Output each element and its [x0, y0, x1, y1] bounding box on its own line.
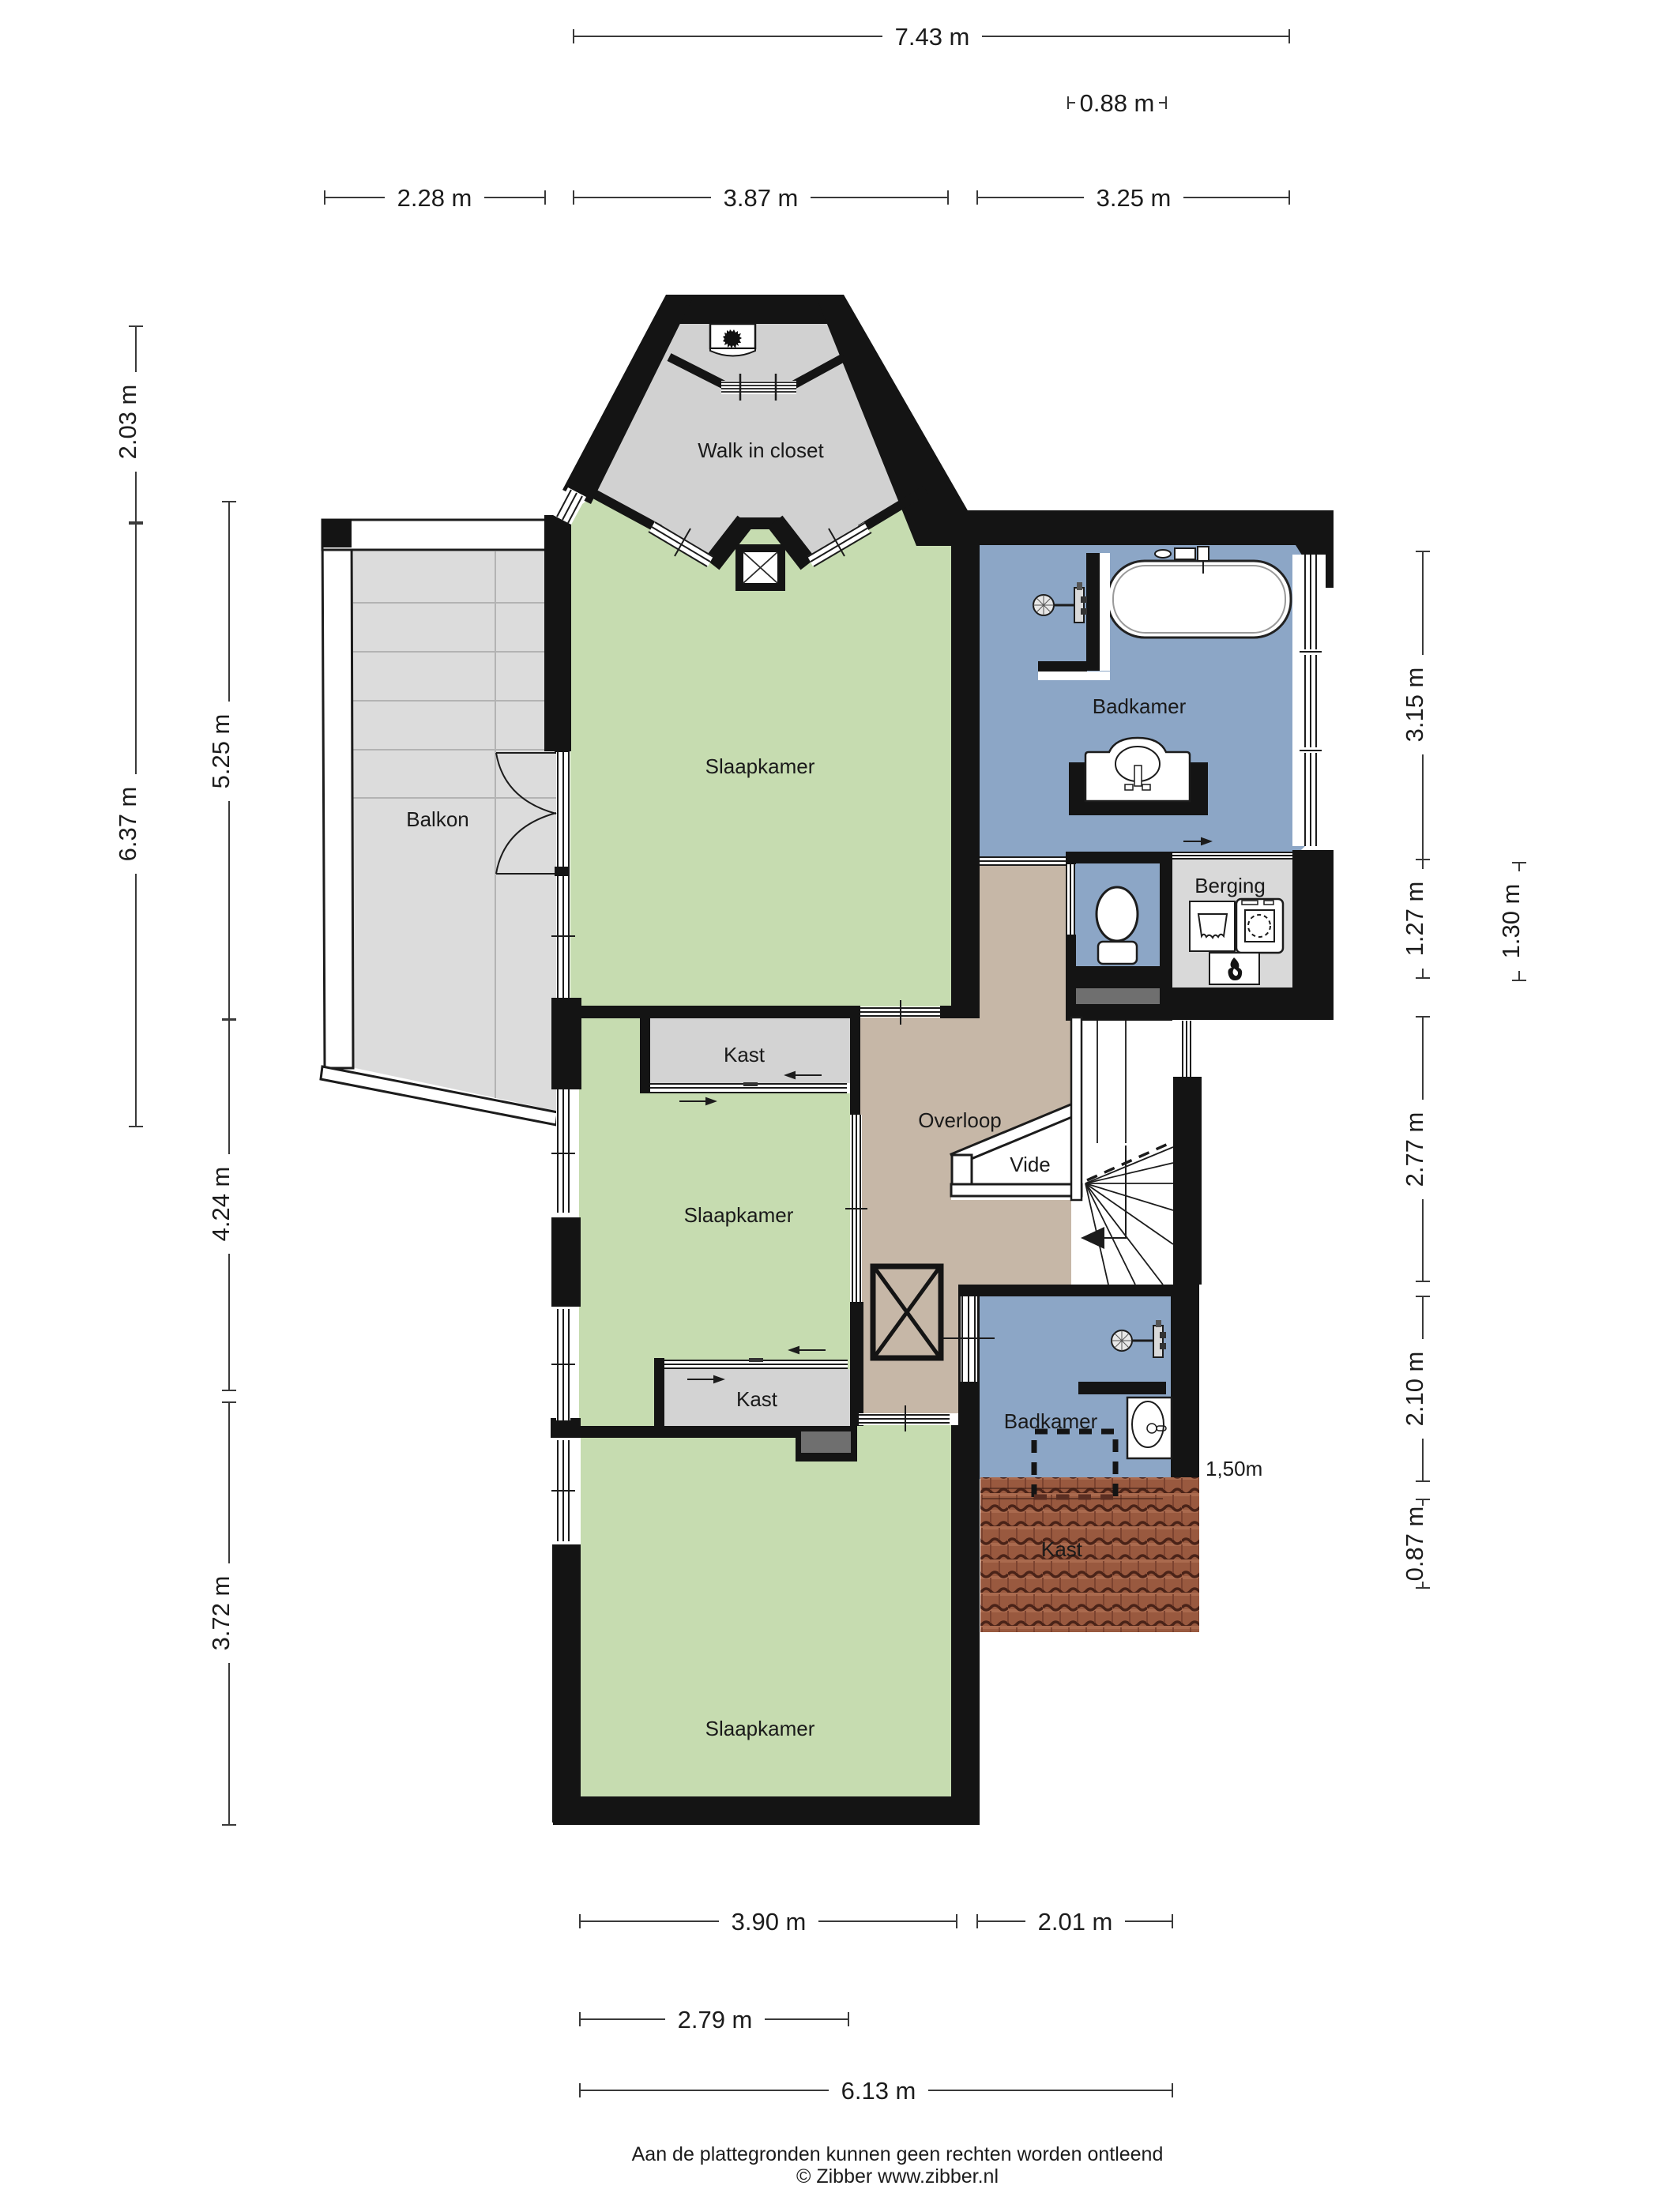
svg-text:Kast: Kast: [736, 1387, 778, 1411]
svg-text:1.27 m: 1.27 m: [1401, 882, 1428, 957]
svg-text:2.10 m: 2.10 m: [1401, 1352, 1428, 1427]
svg-text:4.24 m: 4.24 m: [207, 1167, 235, 1242]
svg-text:Slaapkamer: Slaapkamer: [705, 754, 815, 778]
svg-text:0.88 m: 0.88 m: [1080, 89, 1155, 117]
svg-text:1,50m: 1,50m: [1206, 1457, 1262, 1480]
svg-text:Badkamer: Badkamer: [1093, 694, 1187, 718]
svg-text:6.37 m: 6.37 m: [114, 787, 141, 862]
svg-text:3.25 m: 3.25 m: [1097, 184, 1172, 212]
svg-text:5.25 m: 5.25 m: [207, 714, 235, 789]
svg-text:2.77 m: 2.77 m: [1401, 1112, 1428, 1187]
svg-text:Berging: Berging: [1194, 874, 1266, 897]
svg-text:© Zibber www.zibber.nl: © Zibber www.zibber.nl: [796, 2165, 999, 2188]
svg-text:6.13 m: 6.13 m: [841, 2077, 916, 2105]
svg-text:Vide: Vide: [1010, 1153, 1051, 1176]
svg-text:Slaapkamer: Slaapkamer: [705, 1717, 815, 1740]
svg-text:Slaapkamer: Slaapkamer: [684, 1203, 794, 1227]
svg-text:1.30 m: 1.30 m: [1497, 884, 1525, 959]
svg-text:Kast: Kast: [1041, 1537, 1083, 1561]
svg-text:Balkon: Balkon: [406, 807, 469, 831]
svg-text:7.43 m: 7.43 m: [895, 23, 970, 51]
svg-text:2.01 m: 2.01 m: [1038, 1908, 1113, 1935]
svg-text:2.28 m: 2.28 m: [397, 184, 472, 212]
svg-text:2.03 m: 2.03 m: [114, 385, 141, 460]
svg-text:3.15 m: 3.15 m: [1401, 668, 1428, 743]
svg-text:2.79 m: 2.79 m: [678, 2006, 753, 2033]
svg-text:3.87 m: 3.87 m: [724, 184, 799, 212]
svg-text:3.90 m: 3.90 m: [732, 1908, 807, 1935]
svg-text:Kast: Kast: [724, 1043, 766, 1066]
svg-text:Walk in closet: Walk in closet: [698, 438, 824, 462]
svg-text:3.72 m: 3.72 m: [207, 1576, 235, 1651]
svg-text:Overloop: Overloop: [918, 1108, 1002, 1132]
svg-text:Aan de plattegronden kunnen ge: Aan de plattegronden kunnen geen rechten…: [632, 2143, 1164, 2165]
svg-text:0.87 m: 0.87 m: [1401, 1507, 1428, 1582]
